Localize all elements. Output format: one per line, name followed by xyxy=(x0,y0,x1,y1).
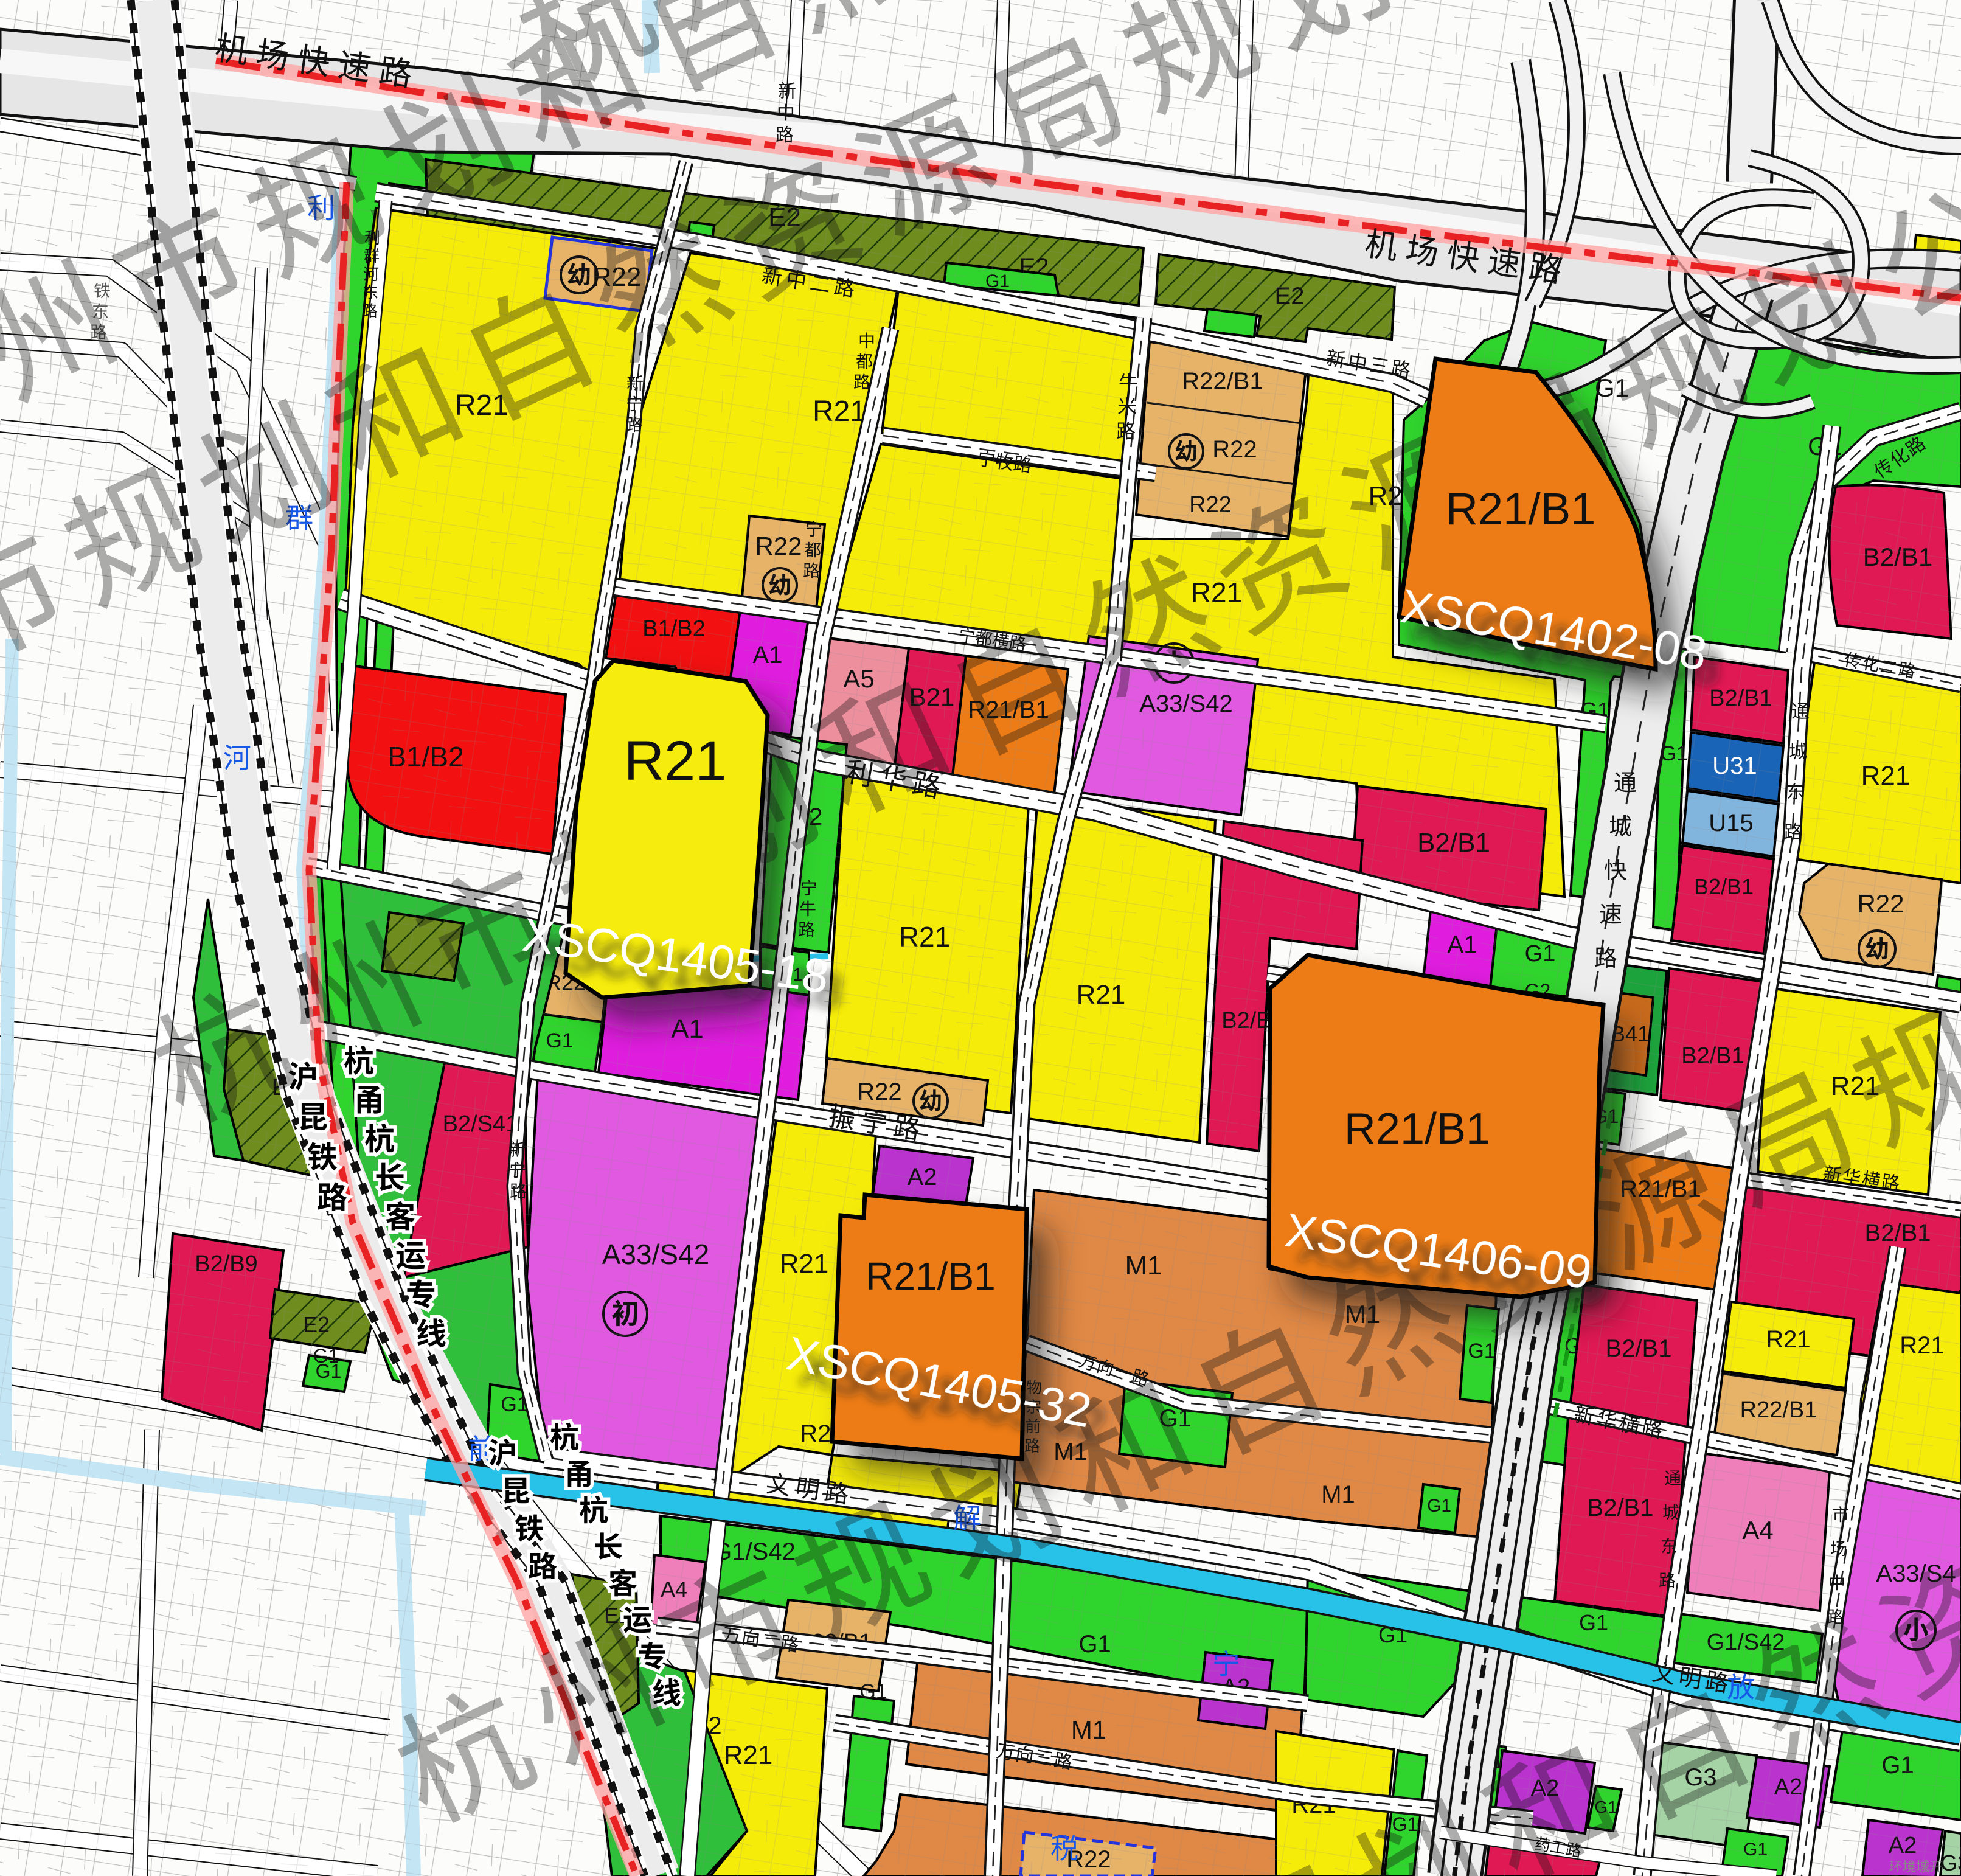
svg-text:R21/B1: R21/B1 xyxy=(1446,473,1596,538)
svg-text:路: 路 xyxy=(528,1543,557,1585)
svg-text:客: 客 xyxy=(385,1193,415,1237)
svg-text:市: 市 xyxy=(1832,1502,1849,1526)
svg-text:沪: 沪 xyxy=(488,1430,517,1472)
svg-text:东: 东 xyxy=(1786,777,1805,804)
svg-text:城: 城 xyxy=(1662,1499,1679,1524)
svg-text:城: 城 xyxy=(1789,737,1807,763)
svg-text:路: 路 xyxy=(317,1173,347,1217)
svg-text:R21/B1: R21/B1 xyxy=(866,1245,995,1301)
svg-text:通: 通 xyxy=(1791,697,1810,723)
svg-text:通: 通 xyxy=(1614,764,1637,797)
svg-text:铁: 铁 xyxy=(307,1133,338,1177)
svg-text:城: 城 xyxy=(1609,808,1632,841)
svg-text:税: 税 xyxy=(1050,1827,1078,1867)
svg-text:路: 路 xyxy=(853,369,870,394)
svg-text:东: 东 xyxy=(1661,1534,1678,1558)
svg-text:河: 河 xyxy=(223,736,251,776)
svg-text:快: 快 xyxy=(1604,852,1627,885)
svg-text:昆: 昆 xyxy=(501,1467,530,1510)
svg-text:速: 速 xyxy=(1599,895,1622,929)
svg-text:长: 长 xyxy=(375,1154,405,1198)
svg-text:路: 路 xyxy=(1594,939,1617,973)
svg-text:路: 路 xyxy=(1659,1568,1676,1592)
svg-text:宁: 宁 xyxy=(1212,1642,1240,1683)
svg-text:杭: 杭 xyxy=(364,1115,395,1159)
svg-text:R21: R21 xyxy=(624,715,727,796)
svg-text:通: 通 xyxy=(1664,1465,1681,1490)
svg-text:路: 路 xyxy=(625,412,642,436)
svg-text:场: 场 xyxy=(1830,1536,1847,1560)
svg-text:路: 路 xyxy=(1784,817,1802,844)
svg-text:路: 路 xyxy=(803,558,820,582)
svg-text:环境城开: 环境城开 xyxy=(1889,1856,1943,1875)
svg-text:路: 路 xyxy=(510,1178,527,1203)
svg-text:R21/B1: R21/B1 xyxy=(1344,1093,1490,1156)
svg-text:路: 路 xyxy=(1116,416,1136,444)
svg-text:专: 专 xyxy=(406,1271,436,1315)
svg-text:线: 线 xyxy=(416,1310,446,1353)
svg-text:铁: 铁 xyxy=(515,1505,544,1548)
svg-text:运: 运 xyxy=(395,1232,426,1276)
